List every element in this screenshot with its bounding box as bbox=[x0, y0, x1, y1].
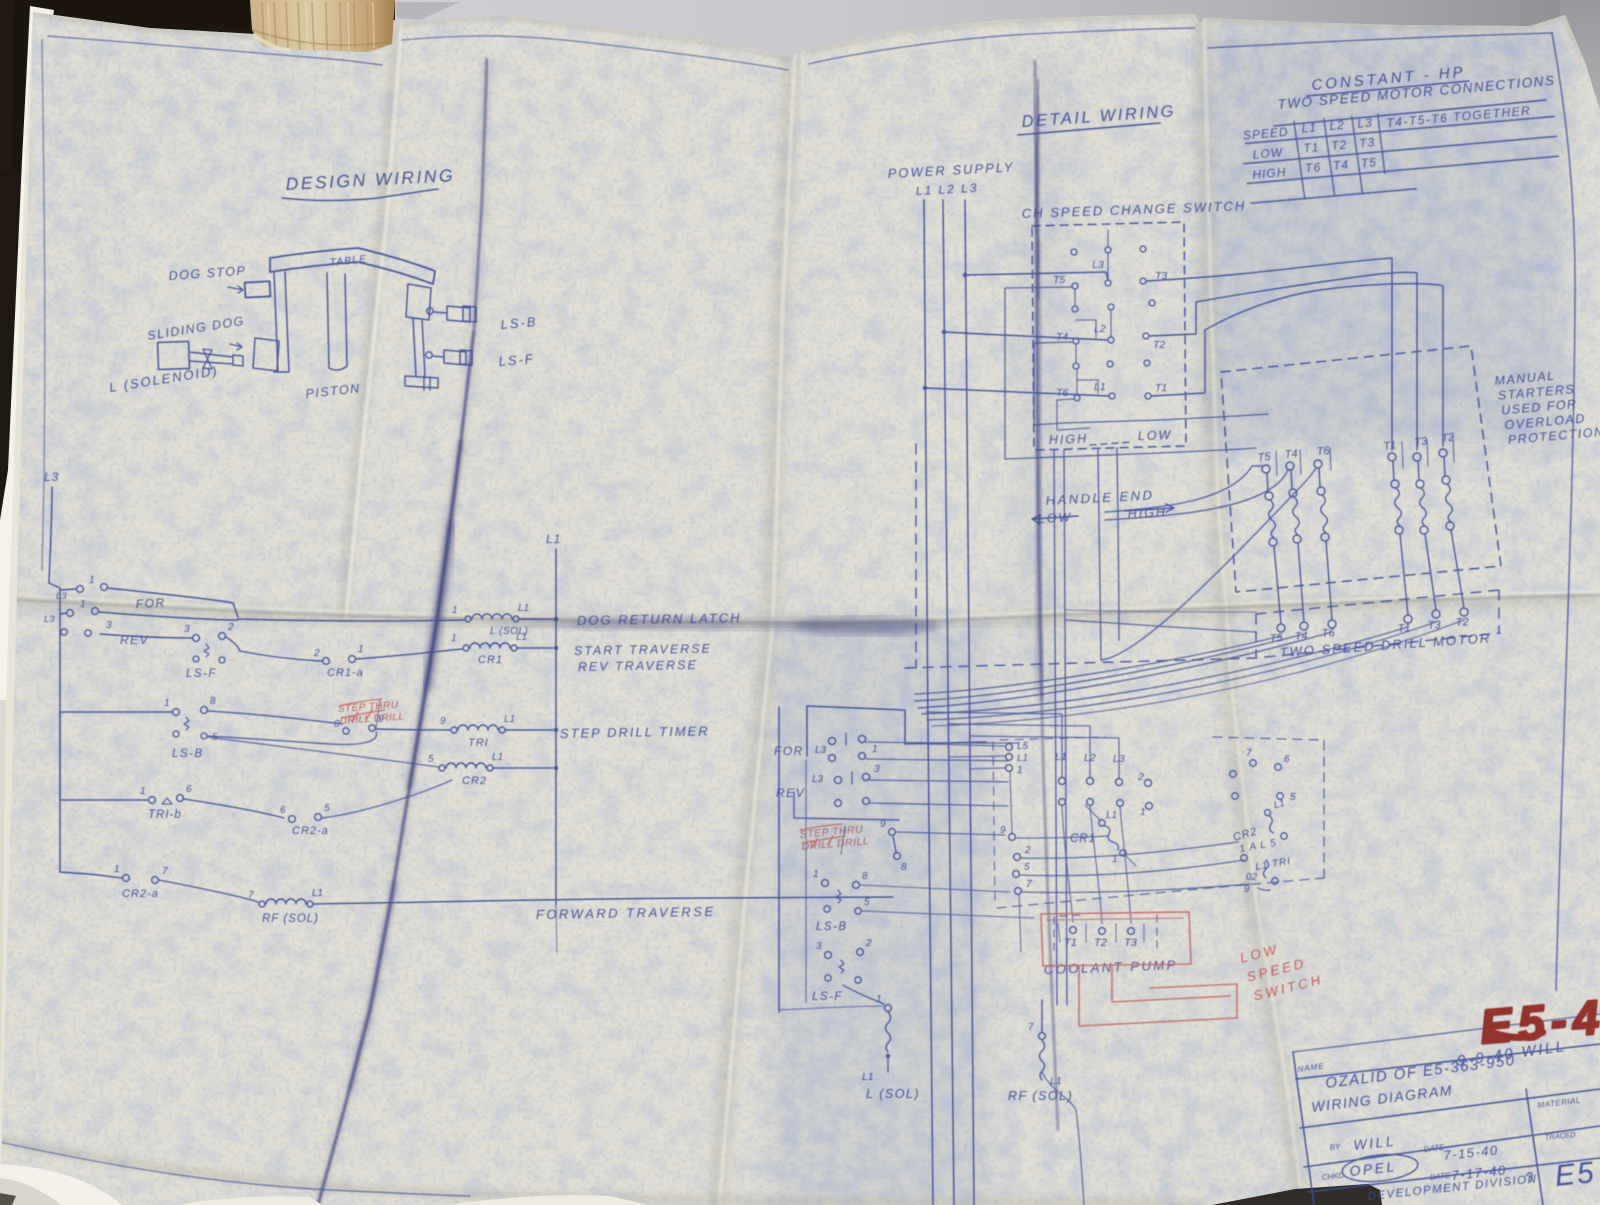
svg-text:FOR: FOR bbox=[774, 744, 804, 758]
svg-text:CR2-a: CR2-a bbox=[122, 888, 159, 900]
svg-text:1: 1 bbox=[358, 644, 364, 655]
svg-text:LS-F: LS-F bbox=[812, 991, 843, 1003]
svg-text:CR1-a: CR1-a bbox=[327, 667, 364, 679]
svg-text:CR1: CR1 bbox=[478, 654, 503, 666]
svg-text:L3: L3 bbox=[1357, 115, 1374, 130]
svg-text:9: 9 bbox=[440, 716, 446, 727]
svg-text:LOW: LOW bbox=[1138, 428, 1173, 443]
svg-text:8: 8 bbox=[862, 871, 868, 882]
svg-text:2: 2 bbox=[313, 648, 320, 659]
svg-text:L1: L1 bbox=[1106, 810, 1117, 821]
svg-text:T4: T4 bbox=[1284, 448, 1298, 461]
svg-text:1: 1 bbox=[89, 575, 95, 586]
svg-text:L1: L1 bbox=[1301, 120, 1318, 135]
svg-text:8: 8 bbox=[901, 862, 907, 873]
svg-text:3: 3 bbox=[106, 620, 112, 631]
svg-text:CR2: CR2 bbox=[462, 775, 487, 787]
svg-text:9: 9 bbox=[378, 714, 384, 725]
svg-text:L5: L5 bbox=[1017, 741, 1029, 752]
svg-text:2: 2 bbox=[227, 622, 234, 633]
svg-text:1: 1 bbox=[164, 698, 170, 709]
svg-text:L1: L1 bbox=[492, 752, 503, 763]
svg-text:L (SOL): L (SOL) bbox=[866, 1087, 920, 1101]
svg-text:1: 1 bbox=[452, 605, 458, 616]
svg-text:T6: T6 bbox=[1316, 445, 1331, 458]
svg-text:L1: L1 bbox=[546, 532, 561, 546]
svg-text:TRI: TRI bbox=[468, 737, 489, 749]
svg-text:L1: L1 bbox=[516, 632, 527, 643]
svg-text:LS-B: LS-B bbox=[816, 921, 848, 933]
svg-text:1: 1 bbox=[813, 869, 819, 880]
svg-text:T5: T5 bbox=[1053, 274, 1065, 286]
svg-text:T4: T4 bbox=[1332, 158, 1349, 173]
svg-text:5: 5 bbox=[1024, 862, 1030, 873]
svg-text:T5: T5 bbox=[1257, 451, 1272, 464]
svg-text:T6: T6 bbox=[1305, 160, 1322, 175]
svg-text:L1: L1 bbox=[1055, 751, 1067, 763]
svg-text:L1: L1 bbox=[1017, 753, 1028, 764]
svg-text:FORWARD TRAVERSE: FORWARD TRAVERSE bbox=[536, 904, 716, 922]
svg-text:1: 1 bbox=[80, 599, 86, 610]
svg-text:REV: REV bbox=[776, 786, 805, 800]
svg-text:L3: L3 bbox=[1092, 259, 1104, 271]
svg-text:LS-F: LS-F bbox=[498, 351, 535, 369]
svg-text:T4: T4 bbox=[1056, 331, 1068, 343]
svg-text:1: 1 bbox=[140, 786, 146, 797]
svg-text:7: 7 bbox=[1028, 1022, 1034, 1033]
svg-text:L3: L3 bbox=[815, 745, 827, 756]
svg-text:8: 8 bbox=[210, 696, 216, 707]
svg-text:TRI-b: TRI-b bbox=[148, 809, 182, 821]
svg-text:E5-4: E5-4 bbox=[1478, 991, 1600, 1055]
svg-text:L1: L1 bbox=[1094, 381, 1106, 393]
svg-text:9: 9 bbox=[1244, 884, 1250, 895]
svg-text:RF (SOL): RF (SOL) bbox=[262, 913, 319, 925]
svg-text:1: 1 bbox=[114, 864, 120, 875]
svg-text:CR1: CR1 bbox=[1070, 833, 1096, 845]
svg-text:LOW: LOW bbox=[1252, 145, 1284, 162]
svg-text:L3: L3 bbox=[56, 591, 67, 602]
svg-text:L1: L1 bbox=[862, 1071, 874, 1083]
svg-text:7: 7 bbox=[1026, 879, 1032, 890]
svg-text:6: 6 bbox=[1284, 754, 1290, 765]
svg-text:E5: E5 bbox=[1553, 1156, 1597, 1193]
svg-text:T1: T1 bbox=[1064, 937, 1077, 949]
svg-text:L3: L3 bbox=[44, 614, 55, 625]
svg-text:CR2-a: CR2-a bbox=[292, 825, 329, 837]
svg-text:6: 6 bbox=[186, 784, 192, 795]
svg-text:T1: T1 bbox=[1383, 439, 1397, 453]
svg-text:5: 5 bbox=[864, 897, 870, 908]
svg-text:T2: T2 bbox=[1094, 937, 1107, 949]
svg-text:FOR: FOR bbox=[135, 595, 166, 611]
svg-text:T5: T5 bbox=[1360, 155, 1377, 170]
svg-text:T2: T2 bbox=[1153, 339, 1165, 351]
svg-text:START TRAVERSE: START TRAVERSE bbox=[574, 642, 712, 658]
svg-text:6: 6 bbox=[280, 805, 286, 816]
svg-text:2: 2 bbox=[1024, 845, 1031, 856]
svg-text:T2: T2 bbox=[1331, 138, 1348, 153]
svg-text:1: 1 bbox=[1140, 807, 1146, 818]
svg-text:2: 2 bbox=[865, 938, 872, 949]
svg-text:3: 3 bbox=[874, 764, 880, 775]
svg-text:02: 02 bbox=[1246, 872, 1258, 883]
svg-text:5: 5 bbox=[1290, 792, 1296, 803]
svg-text:9: 9 bbox=[880, 819, 886, 830]
svg-text:L3: L3 bbox=[812, 774, 824, 785]
svg-text:1: 1 bbox=[451, 633, 457, 644]
svg-text:8: 8 bbox=[334, 719, 340, 730]
svg-text:LS-B: LS-B bbox=[500, 314, 538, 332]
svg-text:T6: T6 bbox=[1056, 387, 1068, 399]
svg-text:STEP DRILL TIMER: STEP DRILL TIMER bbox=[560, 723, 710, 741]
svg-text:HIGH: HIGH bbox=[1252, 165, 1287, 182]
svg-text:7: 7 bbox=[1246, 748, 1252, 759]
svg-text:T1: T1 bbox=[1155, 382, 1167, 394]
svg-text:REV TRAVERSE: REV TRAVERSE bbox=[578, 658, 698, 674]
svg-text:9: 9 bbox=[1000, 825, 1006, 836]
svg-text:2: 2 bbox=[1137, 771, 1144, 783]
svg-text:BY: BY bbox=[1329, 1142, 1341, 1152]
svg-text:HIGH: HIGH bbox=[1049, 432, 1089, 447]
svg-text:3: 3 bbox=[816, 941, 822, 952]
svg-text:L3: L3 bbox=[44, 470, 59, 484]
svg-text:5: 5 bbox=[324, 803, 330, 814]
svg-text:1: 1 bbox=[872, 744, 878, 755]
svg-text:3: 3 bbox=[184, 624, 190, 635]
svg-text:7: 7 bbox=[162, 866, 168, 877]
svg-text:L1: L1 bbox=[312, 888, 323, 899]
svg-text:T3: T3 bbox=[1124, 937, 1138, 949]
svg-text:7: 7 bbox=[248, 890, 254, 901]
svg-text:LS-F: LS-F bbox=[186, 668, 217, 680]
svg-text:T3: T3 bbox=[1359, 135, 1376, 150]
svg-text:1: 1 bbox=[1112, 854, 1118, 865]
svg-text:1: 1 bbox=[1017, 765, 1023, 776]
svg-text:LS-B: LS-B bbox=[172, 748, 204, 760]
svg-text:T1: T1 bbox=[1303, 140, 1320, 155]
svg-text:DOG RETURN LATCH: DOG RETURN LATCH bbox=[577, 610, 742, 628]
svg-text:1: 1 bbox=[876, 994, 882, 1005]
svg-text:L1: L1 bbox=[518, 603, 529, 614]
svg-text:L1: L1 bbox=[504, 714, 515, 725]
svg-text:L2: L2 bbox=[1329, 118, 1346, 133]
svg-text:5: 5 bbox=[428, 754, 434, 765]
